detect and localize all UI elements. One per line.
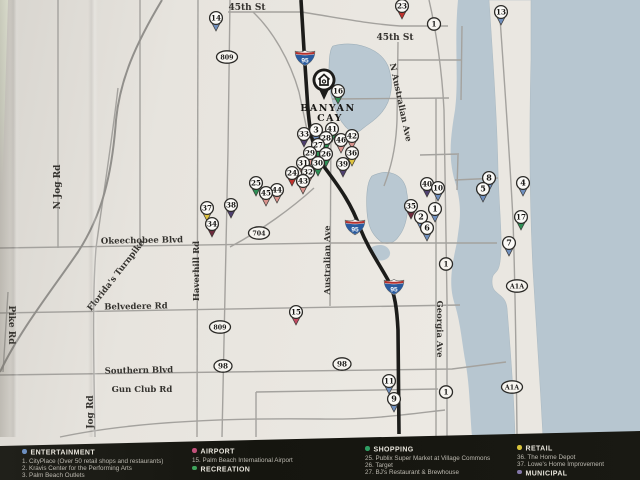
svg-text:46: 46 <box>336 136 346 145</box>
svg-text:6: 6 <box>424 223 430 233</box>
shield-98: 98 <box>333 358 351 370</box>
svg-text:23: 23 <box>397 2 407 11</box>
legend-category-dot-icon <box>365 446 370 451</box>
svg-text:42: 42 <box>347 132 357 141</box>
legend-item: 25. Publix Super Market at Village Commo… <box>365 455 490 462</box>
marker-43: 43 <box>297 175 310 194</box>
legend-item: 3. Palm Beach Outlets <box>22 472 163 479</box>
legend-item: 36. The Home Depot <box>517 454 604 461</box>
svg-text:809: 809 <box>213 325 226 332</box>
marker-39: 39 <box>337 158 350 177</box>
svg-text:43: 43 <box>298 177 308 186</box>
svg-text:95: 95 <box>351 227 359 234</box>
svg-text:A1A: A1A <box>509 284 524 291</box>
shield-A1A: A1A <box>507 280 528 292</box>
svg-text:16: 16 <box>333 87 343 96</box>
svg-text:1: 1 <box>443 388 448 397</box>
shield-809: 809 <box>210 321 231 333</box>
road-label: Belvedere Rd <box>104 301 168 312</box>
shield-1: 1 <box>440 258 453 270</box>
legend-category-dot-icon <box>192 448 197 453</box>
road-label: 45th St <box>376 33 414 43</box>
svg-text:A1A: A1A <box>504 385 519 392</box>
marker-15: 15 <box>290 306 303 325</box>
road-label: Australian Ave <box>323 225 333 296</box>
marker-1: 1 <box>429 203 442 222</box>
paper-crease <box>88 0 98 437</box>
road-network <box>0 0 517 437</box>
legend-item: 1. CityPlace (Over 50 retail shops and r… <box>22 458 163 465</box>
road-label: Gun Club Rd <box>112 385 173 395</box>
lake-south <box>367 172 408 243</box>
svg-text:38: 38 <box>226 201 236 210</box>
svg-text:98: 98 <box>337 360 347 369</box>
legend-category-title: RETAIL <box>517 445 604 454</box>
svg-text:98: 98 <box>218 362 228 371</box>
marker-23: 23 <box>396 0 409 19</box>
road-label: N Jog Rd <box>53 164 63 210</box>
legend-column-3: SHOPPING25. Publix Super Market at Villa… <box>365 446 490 478</box>
svg-text:704: 704 <box>252 231 266 238</box>
svg-text:35: 35 <box>406 202 416 211</box>
svg-text:17: 17 <box>516 213 526 222</box>
ocean-water <box>440 0 640 437</box>
svg-text:95: 95 <box>390 287 398 294</box>
svg-text:33: 33 <box>299 130 309 139</box>
svg-text:26: 26 <box>321 150 331 159</box>
svg-text:25: 25 <box>251 179 261 188</box>
legend-category-title: ENTERTAINMENT <box>22 449 163 458</box>
svg-text:4: 4 <box>520 178 526 188</box>
legend-category-dot-icon <box>22 449 27 454</box>
road-label: 45th St <box>228 3 266 13</box>
svg-text:13: 13 <box>496 8 506 17</box>
svg-text:34: 34 <box>207 220 217 229</box>
road-label: Georgia Ave <box>434 300 444 358</box>
svg-text:11: 11 <box>384 377 394 386</box>
svg-text:37: 37 <box>202 204 212 213</box>
svg-text:3: 3 <box>313 125 319 135</box>
svg-text:CAY: CAY <box>317 113 343 124</box>
legend-category-dot-icon <box>192 466 197 471</box>
marker-33: 33 <box>298 128 311 147</box>
svg-text:44: 44 <box>272 186 282 195</box>
svg-text:8: 8 <box>486 173 492 183</box>
shield-809: 809 <box>217 51 238 63</box>
svg-text:29: 29 <box>305 149 315 158</box>
legend-category-dot-icon <box>517 470 522 475</box>
legend-column-2: AIRPORT15. Palm Beach International Airp… <box>192 448 293 476</box>
svg-text:809: 809 <box>220 55 233 62</box>
legend-item: 37. Lowe's Home Improvement <box>517 461 604 468</box>
map-photo: 45th St45th StOkeechobee BlvdBelvedere R… <box>0 0 640 480</box>
legend-item: 2. Kravis Center for the Performing Arts <box>22 465 163 472</box>
road-label: Haverhill Rd <box>192 241 202 301</box>
shield-95: 95 <box>295 51 315 66</box>
legend-item: 27. BJ's Restaurant & Brewhouse <box>365 469 490 476</box>
legend-category-title: SHOPPING <box>365 446 490 455</box>
svg-text:39: 39 <box>338 160 348 169</box>
legend-item: 26. Target <box>365 462 490 469</box>
svg-text:14: 14 <box>211 14 221 23</box>
svg-text:36: 36 <box>347 149 357 158</box>
svg-text:10: 10 <box>433 184 443 193</box>
shield-704: 704 <box>249 227 270 239</box>
shield-95: 95 <box>384 280 404 295</box>
road-florida-turnpike <box>0 0 162 372</box>
legend-item: 15. Palm Beach International Airport <box>192 457 293 464</box>
road-label: Southern Blvd <box>105 365 174 376</box>
marker-6: 6 <box>421 222 434 241</box>
svg-text:30: 30 <box>313 159 323 168</box>
legend-column-4: RETAIL36. The Home Depot37. Lowe's Home … <box>517 445 604 480</box>
shield-1: 1 <box>440 386 453 398</box>
legend-category-title: RECREATION <box>192 466 293 475</box>
svg-text:45: 45 <box>261 189 271 198</box>
legend-category-title: AIRPORT <box>192 448 293 457</box>
svg-text:1: 1 <box>431 20 436 29</box>
shield-A1A: A1A <box>502 381 523 393</box>
svg-text:15: 15 <box>291 308 301 317</box>
legend-column-1: ENTERTAINMENT1. CityPlace (Over 50 retai… <box>22 449 163 480</box>
marker-34: 34 <box>206 218 219 237</box>
legend-category-dot-icon <box>517 445 522 450</box>
svg-text:7: 7 <box>506 238 512 248</box>
svg-text:5: 5 <box>480 184 486 194</box>
svg-text:1: 1 <box>432 204 438 214</box>
svg-text:9: 9 <box>391 394 397 404</box>
marker-14: 14 <box>210 12 223 31</box>
shield-98: 98 <box>214 360 232 372</box>
svg-text:24: 24 <box>287 169 297 178</box>
paper-crease <box>10 0 20 437</box>
svg-text:2: 2 <box>418 212 424 222</box>
marker-45: 45 <box>260 187 273 206</box>
svg-text:1: 1 <box>443 260 448 269</box>
shield-1: 1 <box>428 18 441 30</box>
legend-category-title: MUNICIPAL <box>517 470 604 479</box>
svg-text:95: 95 <box>301 58 309 65</box>
road-label: N Australian Ave <box>387 62 414 143</box>
svg-text:40: 40 <box>422 180 432 189</box>
marker-11: 11 <box>383 375 396 394</box>
